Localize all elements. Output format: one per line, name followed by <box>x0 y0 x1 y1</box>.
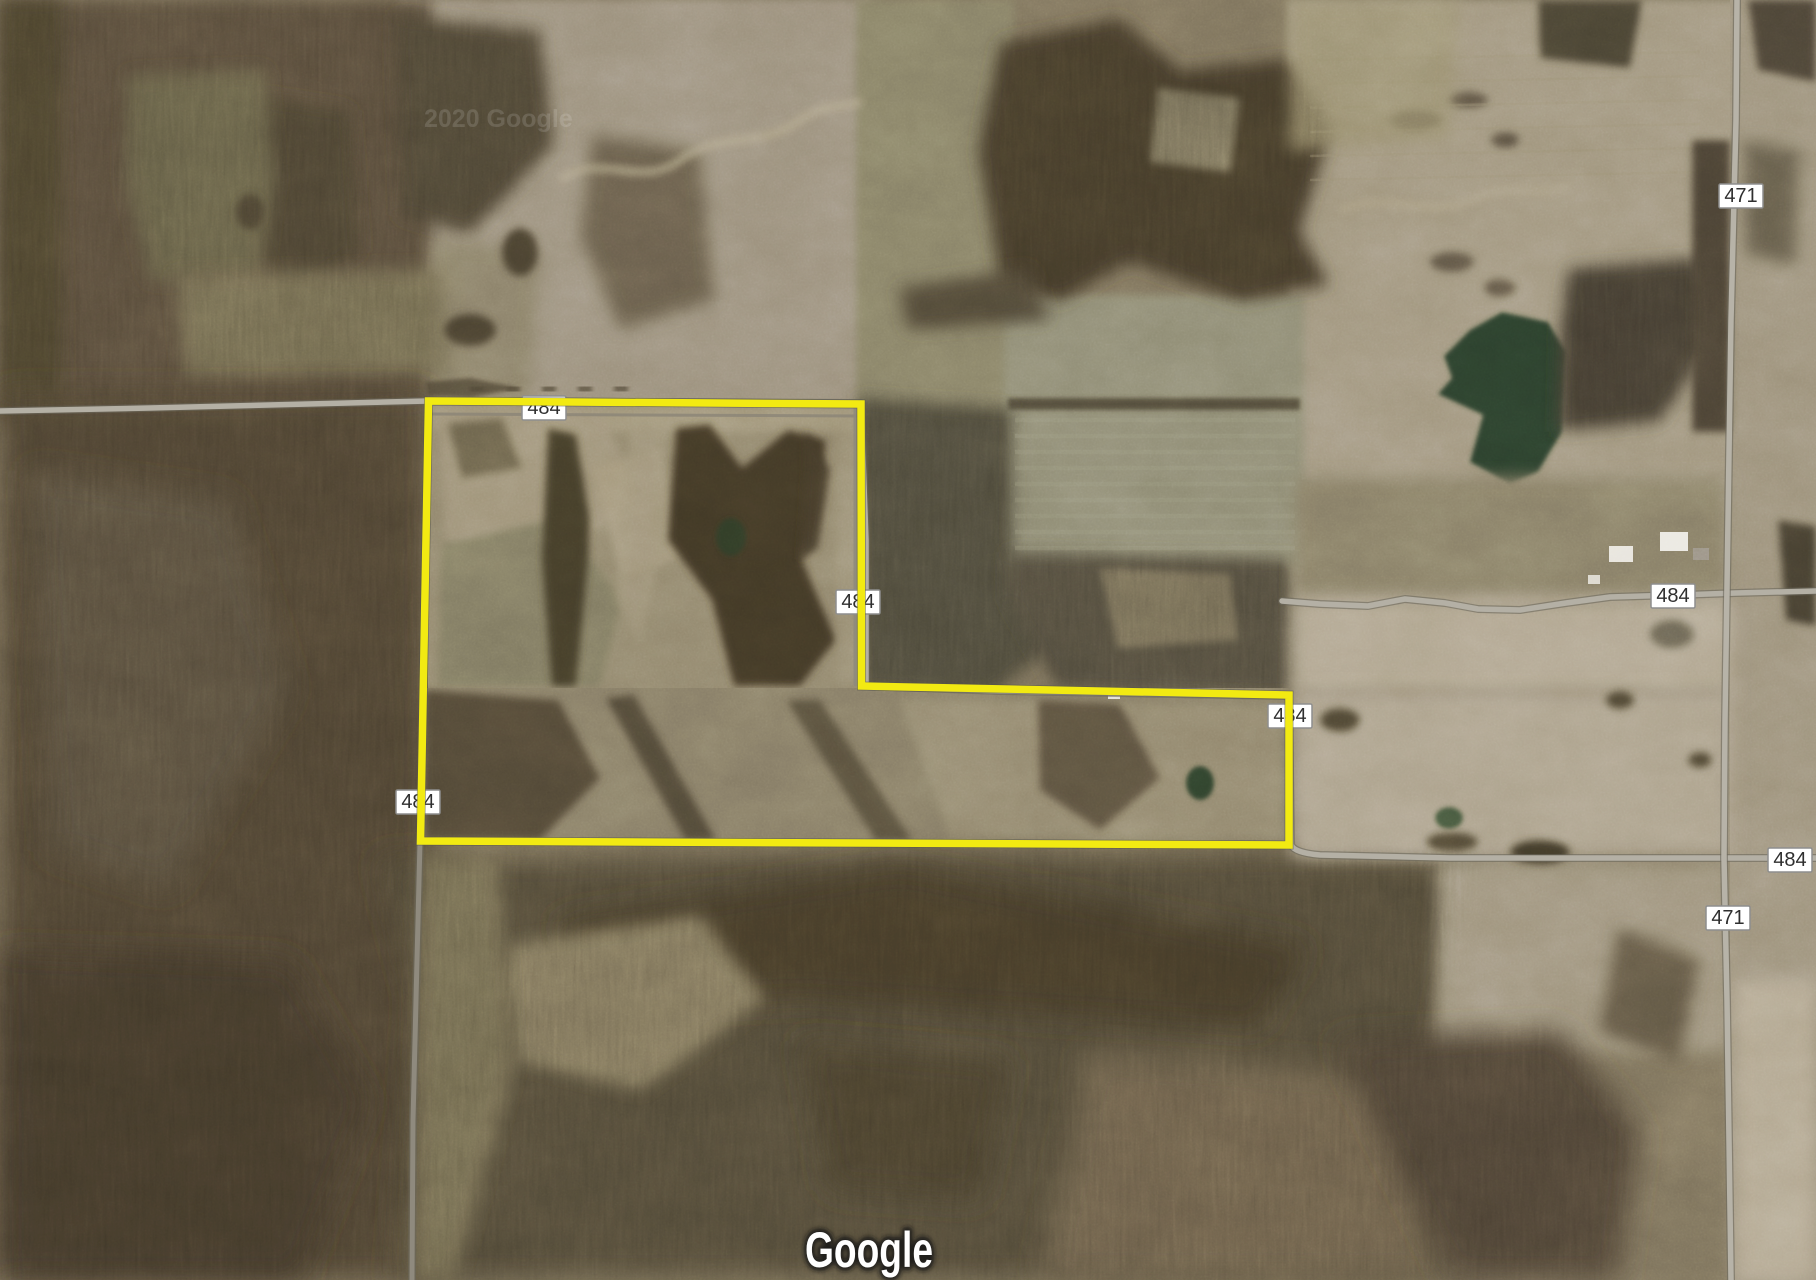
svg-text:471: 471 <box>1724 185 1757 207</box>
svg-text:484: 484 <box>1773 849 1806 871</box>
svg-text:2020 Google: 2020 Google <box>424 105 573 133</box>
svg-text:Google: Google <box>805 1222 933 1278</box>
svg-text:471: 471 <box>1711 907 1744 929</box>
svg-text:484: 484 <box>1656 585 1689 607</box>
